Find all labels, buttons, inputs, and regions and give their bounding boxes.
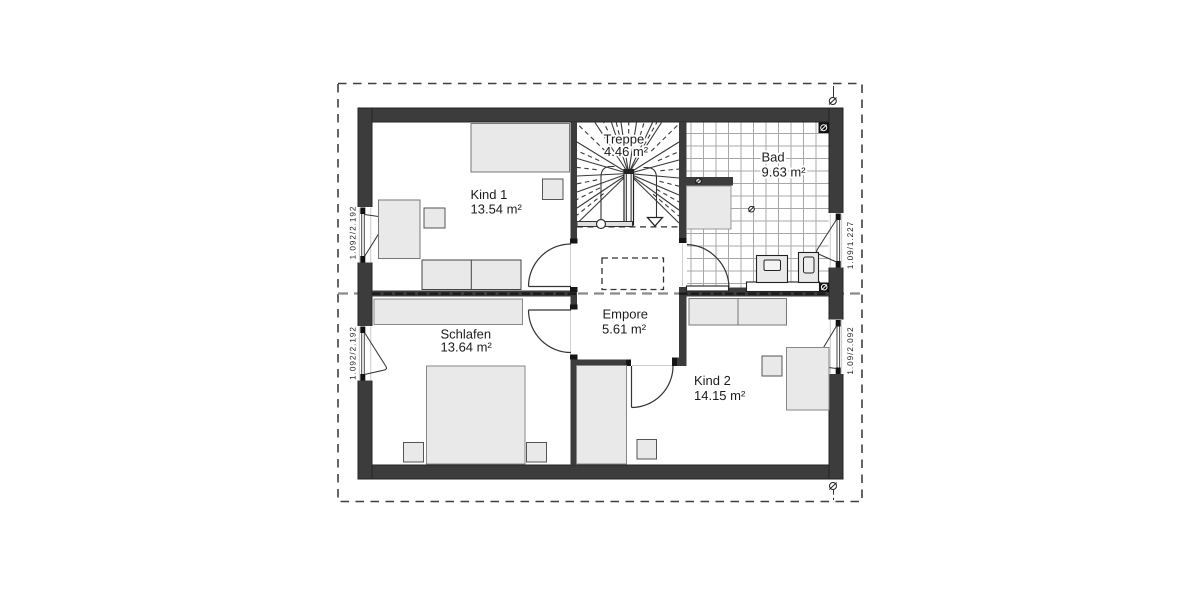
- svg-text:1.09/2.092: 1.09/2.092: [846, 326, 855, 374]
- svg-text:1.092/2.192: 1.092/2.192: [348, 206, 357, 260]
- svg-text:Kind 2: Kind 2: [694, 373, 731, 388]
- svg-text:9.63 m²: 9.63 m²: [762, 165, 807, 180]
- svg-text:Empore: Empore: [603, 307, 649, 322]
- svg-text:Kind 1: Kind 1: [471, 187, 508, 202]
- svg-text:14.15 m²: 14.15 m²: [694, 388, 746, 403]
- svg-text:1.092/2.192: 1.092/2.192: [348, 326, 357, 380]
- svg-text:4.46 m²: 4.46 m²: [604, 144, 649, 159]
- svg-text:5.61 m²: 5.61 m²: [602, 321, 647, 336]
- svg-text:13.54 m²: 13.54 m²: [471, 202, 523, 217]
- svg-text:1.09/1.227: 1.09/1.227: [846, 221, 855, 269]
- svg-text:Bad: Bad: [762, 150, 785, 165]
- svg-text:13.64 m²: 13.64 m²: [441, 340, 493, 355]
